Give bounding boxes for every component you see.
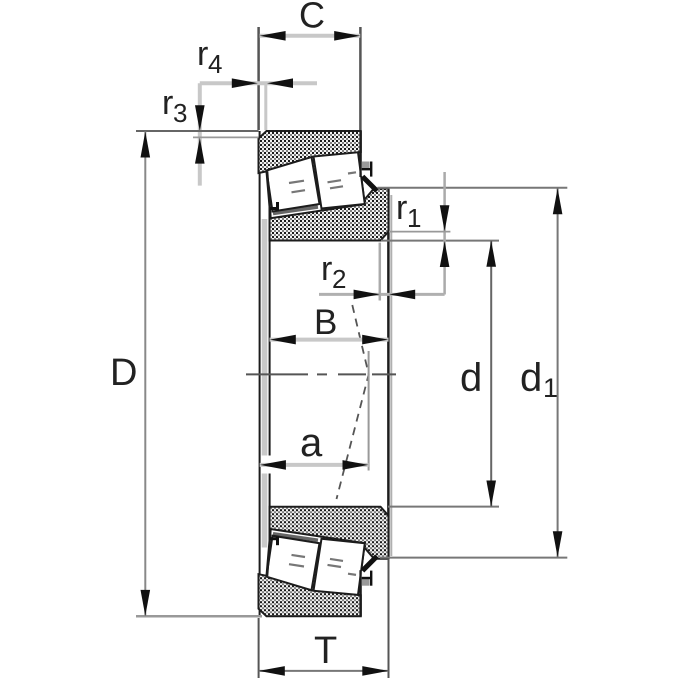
svg-text:3: 3 (173, 98, 187, 128)
svg-text:4: 4 (208, 49, 222, 79)
svg-text:2: 2 (332, 264, 346, 294)
svg-text:r: r (321, 250, 332, 288)
svg-text:D: D (110, 352, 137, 394)
svg-text:B: B (314, 303, 337, 342)
svg-text:r: r (162, 84, 173, 122)
svg-text:T: T (314, 630, 337, 672)
svg-text:r: r (197, 35, 208, 73)
svg-text:a: a (300, 421, 323, 465)
svg-text:1: 1 (543, 373, 558, 403)
svg-text:r: r (396, 189, 407, 227)
svg-text:1: 1 (407, 203, 421, 233)
svg-text:C: C (299, 0, 325, 36)
svg-text:d: d (520, 356, 542, 400)
svg-text:d: d (460, 356, 482, 400)
